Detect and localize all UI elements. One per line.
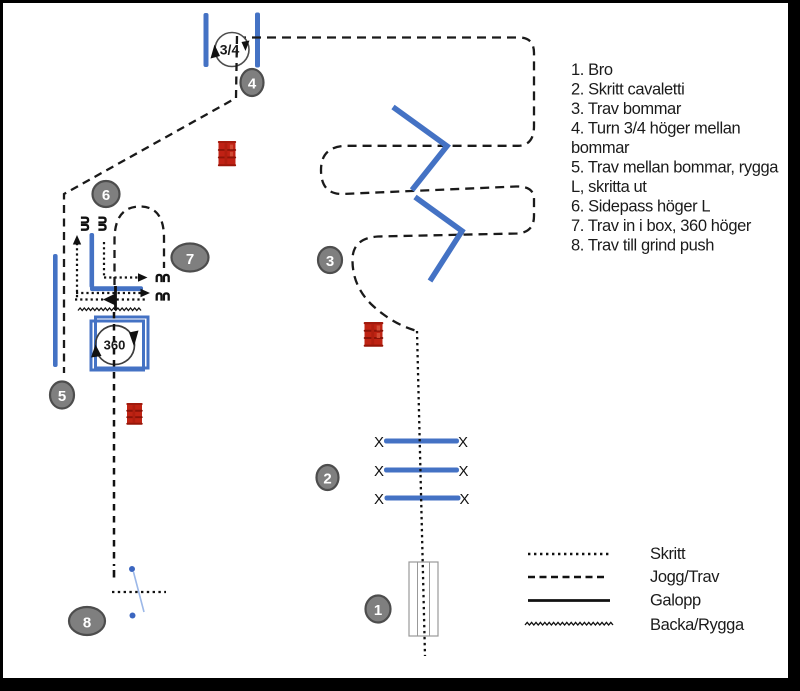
svg-text:L, skritta ut: L, skritta ut	[571, 178, 647, 196]
svg-text:1. Bro: 1. Bro	[571, 61, 613, 79]
svg-text:8: 8	[83, 615, 91, 632]
svg-text:Galopp: Galopp	[650, 592, 701, 610]
svg-text:X: X	[458, 463, 468, 480]
svg-text:3: 3	[326, 253, 334, 270]
svg-text:6. Sidepass höger L: 6. Sidepass höger L	[571, 198, 710, 216]
svg-text:1: 1	[374, 602, 382, 619]
svg-text:3/4: 3/4	[220, 42, 240, 58]
svg-text:Skritt: Skritt	[650, 545, 686, 563]
svg-text:X: X	[374, 463, 384, 480]
svg-text:8. Trav till grind push: 8. Trav till grind push	[571, 237, 714, 255]
svg-text:Jogg/Trav: Jogg/Trav	[650, 568, 720, 586]
svg-text:Backa/Rygga: Backa/Rygga	[650, 616, 745, 634]
svg-text:3. Trav bommar: 3. Trav bommar	[571, 100, 682, 118]
svg-text:X: X	[374, 491, 384, 508]
svg-text:5. Trav mellan bommar, rygga: 5. Trav mellan bommar, rygga	[571, 159, 779, 177]
svg-text:5: 5	[58, 388, 66, 405]
svg-text:7: 7	[186, 251, 194, 268]
svg-text:X: X	[458, 434, 468, 451]
svg-text:6: 6	[102, 187, 110, 204]
svg-text:X: X	[374, 434, 384, 451]
svg-text:2. Skritt cavaletti: 2. Skritt cavaletti	[571, 81, 684, 99]
svg-text:4: 4	[248, 76, 257, 93]
svg-text:2: 2	[323, 471, 331, 488]
svg-text:7. Trav in i box, 360 höger: 7. Trav in i box, 360 höger	[571, 217, 752, 235]
svg-text:X: X	[459, 491, 469, 508]
svg-text:bommar: bommar	[571, 139, 630, 157]
svg-text:4. Turn 3/4 höger mellan: 4. Turn 3/4 höger mellan	[571, 120, 740, 138]
